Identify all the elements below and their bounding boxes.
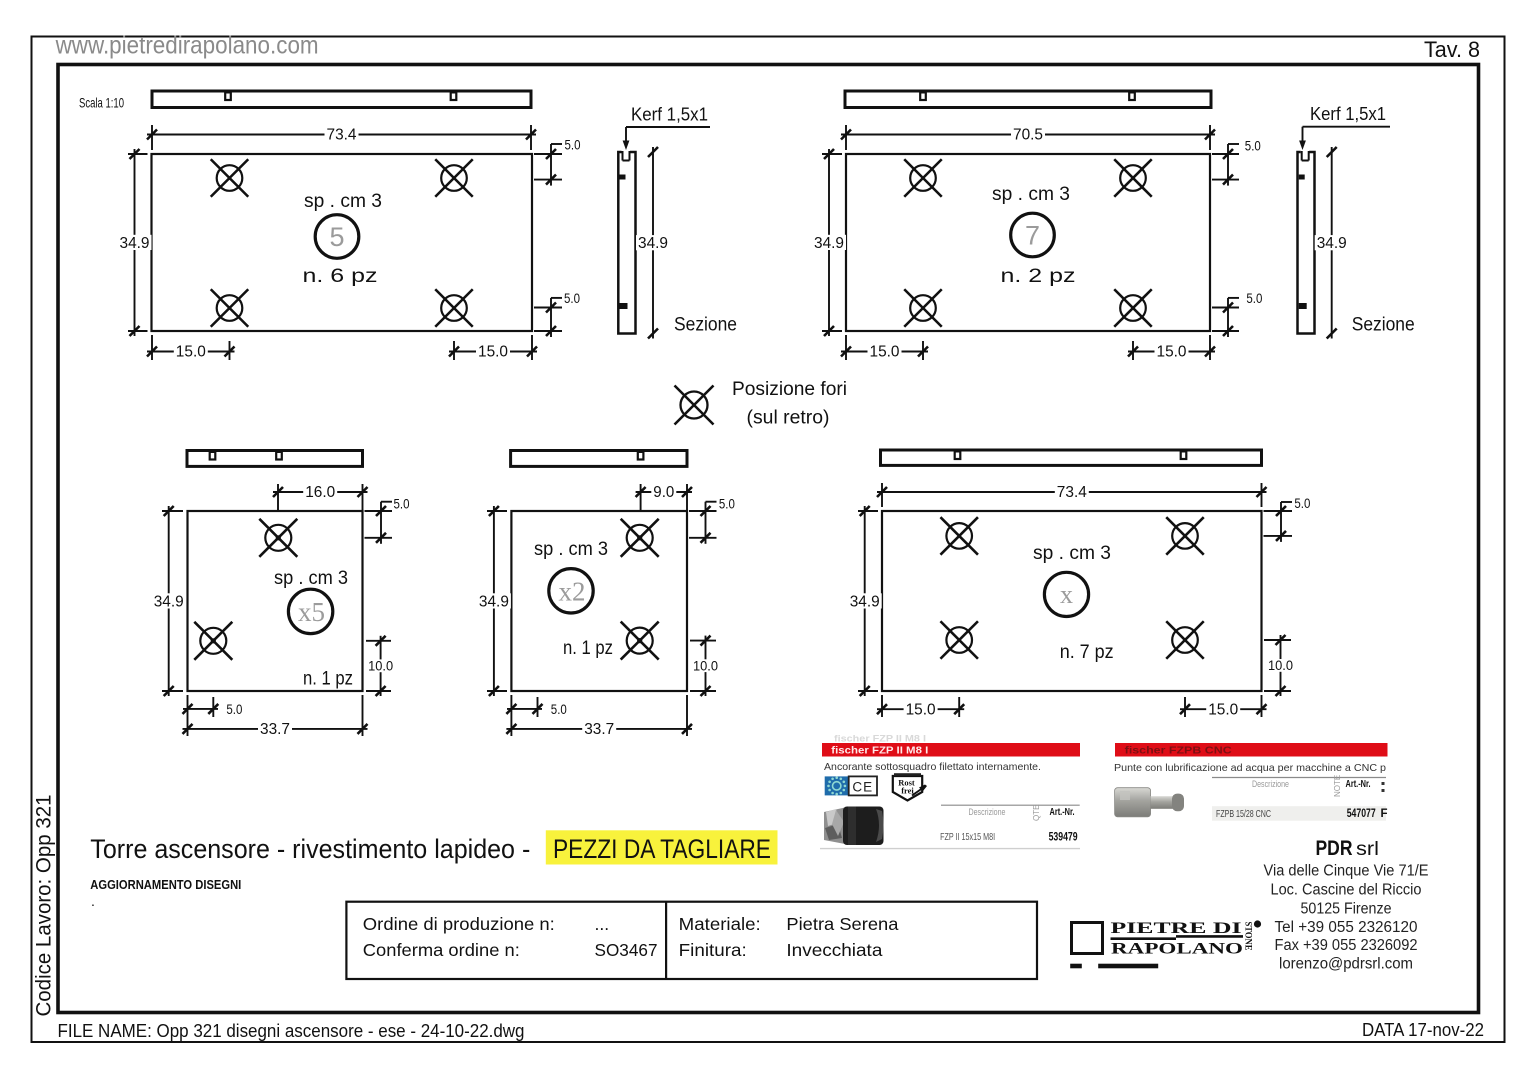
- svg-text:NOTE: NOTE: [1333, 775, 1342, 797]
- svg-text:(sul retro): (sul retro): [747, 408, 830, 429]
- svg-text:sp . cm 3: sp . cm 3: [534, 539, 608, 560]
- svg-text:Art.-Nr.: Art.-Nr.: [1346, 779, 1371, 790]
- svg-text:FILE NAME: Opp 321 disegni as: FILE NAME: Opp 321 disegni ascensore - e…: [58, 1021, 525, 1041]
- svg-text:Tel +39 055 2326120: Tel +39 055 2326120: [1275, 919, 1418, 936]
- svg-text:Kerf 1,5x1: Kerf 1,5x1: [1310, 104, 1386, 124]
- svg-text:n. 1 pz: n. 1 pz: [303, 669, 353, 690]
- svg-text:sp . cm 3: sp . cm 3: [304, 191, 382, 212]
- svg-text:x: x: [1060, 580, 1073, 609]
- svg-text:FZPB 15/28 CNC: FZPB 15/28 CNC: [1216, 808, 1271, 820]
- svg-text:Ancorante sottosquadro filetta: Ancorante sottosquadro filettato interna…: [824, 761, 1041, 773]
- svg-text:5.0: 5.0: [719, 496, 735, 511]
- svg-text:70.5: 70.5: [1013, 127, 1043, 144]
- svg-text:SO3467: SO3467: [595, 940, 658, 960]
- svg-text:n. 7 pz: n. 7 pz: [1060, 642, 1114, 663]
- svg-text:15.0: 15.0: [906, 701, 936, 718]
- svg-text:fischer FZPB CNC: fischer FZPB CNC: [1125, 745, 1232, 757]
- svg-text:Codice Lavoro: Opp 321: Codice Lavoro: Opp 321: [33, 795, 56, 1017]
- svg-text:5.0: 5.0: [551, 702, 567, 717]
- svg-text:Conferma ordine n:: Conferma ordine n:: [363, 940, 520, 960]
- svg-text:Descrizione: Descrizione: [1252, 779, 1289, 790]
- svg-text:5.0: 5.0: [1246, 291, 1262, 306]
- svg-text:Via delle Cinque Vie 71/E: Via delle Cinque Vie 71/E: [1264, 863, 1429, 880]
- svg-text:73.4: 73.4: [327, 127, 357, 144]
- svg-text:x5: x5: [298, 597, 325, 627]
- svg-text:PDR: PDR: [1316, 837, 1353, 860]
- svg-text:5.0: 5.0: [226, 702, 242, 717]
- svg-text:34.9: 34.9: [479, 593, 509, 610]
- svg-text:STONE: STONE: [1244, 922, 1254, 951]
- svg-text:34.9: 34.9: [1317, 235, 1347, 252]
- svg-text:15.0: 15.0: [478, 344, 508, 361]
- svg-text:RAPOLANO: RAPOLANO: [1111, 941, 1243, 958]
- svg-text:34.9: 34.9: [154, 593, 184, 610]
- svg-text:5.0: 5.0: [1245, 138, 1261, 153]
- svg-text:fischer FZP II M8 I: fischer FZP II M8 I: [831, 745, 928, 757]
- svg-text:n. 1 pz: n. 1 pz: [563, 638, 613, 659]
- svg-text:Kerf 1,5x1: Kerf 1,5x1: [631, 105, 708, 125]
- svg-text:50125 Firenze: 50125 Firenze: [1301, 901, 1392, 918]
- svg-text:.: .: [91, 893, 95, 909]
- svg-text:sp . cm 3: sp . cm 3: [992, 184, 1070, 205]
- svg-text:34.9: 34.9: [814, 235, 844, 252]
- svg-text:10.0: 10.0: [693, 658, 718, 673]
- svg-text:PEZZI DA TAGLIARE: PEZZI DA TAGLIARE: [553, 834, 771, 864]
- svg-text:5.0: 5.0: [565, 137, 581, 152]
- svg-text:34.9: 34.9: [850, 593, 880, 610]
- svg-text:sp . cm 3: sp . cm 3: [1033, 543, 1111, 564]
- svg-text:34.9: 34.9: [120, 235, 150, 252]
- svg-text:Fax +39 055 2326092: Fax +39 055 2326092: [1275, 937, 1418, 954]
- svg-text:5: 5: [329, 222, 344, 252]
- svg-text:Punte con lubrificazione ad ac: Punte con lubrificazione ad acqua per ma…: [1114, 762, 1386, 774]
- svg-text:lorenzo@pdrsrl.com: lorenzo@pdrsrl.com: [1279, 956, 1413, 973]
- svg-text:5.0: 5.0: [394, 496, 410, 511]
- svg-text:sp . cm 3: sp . cm 3: [274, 568, 348, 589]
- svg-text:5.0: 5.0: [564, 291, 580, 306]
- svg-text:Ordine di produzione n:: Ordine di produzione n:: [363, 914, 555, 934]
- svg-text:10.0: 10.0: [368, 658, 393, 673]
- svg-text:FZP II 15x15 M8I: FZP II 15x15 M8I: [940, 831, 995, 843]
- svg-text:...: ...: [595, 914, 610, 934]
- svg-text:34.9: 34.9: [638, 235, 668, 252]
- svg-text:15.0: 15.0: [1208, 701, 1238, 718]
- svg-text:5.0: 5.0: [1294, 496, 1310, 511]
- svg-text:PIETRE DI: PIETRE DI: [1111, 920, 1242, 937]
- svg-text:Art.-Nr.: Art.-Nr.: [1050, 807, 1075, 818]
- svg-text:73.4: 73.4: [1057, 484, 1087, 501]
- svg-text:Tav. 8: Tav. 8: [1424, 37, 1480, 62]
- svg-text:n. 2 pz: n. 2 pz: [1001, 266, 1076, 287]
- svg-text:QTE: QTE: [1032, 805, 1041, 821]
- svg-text:7: 7: [1025, 221, 1040, 251]
- svg-text:DATA 17-nov-22: DATA 17-nov-22: [1362, 1020, 1484, 1040]
- svg-text:33.7: 33.7: [260, 721, 290, 738]
- svg-text:Descrizione: Descrizione: [969, 807, 1006, 818]
- svg-text:CE: CE: [852, 780, 873, 795]
- svg-text:15.0: 15.0: [176, 344, 206, 361]
- svg-text:Torre ascensore - rivestimento: Torre ascensore - rivestimento lapideo -: [90, 834, 530, 864]
- svg-text:Loc. Cascine del Riccio: Loc. Cascine del Riccio: [1271, 882, 1422, 899]
- svg-text:Scala 1:10: Scala 1:10: [79, 95, 124, 111]
- svg-text:10.0: 10.0: [1268, 658, 1293, 673]
- svg-text:fischer FZP II M8 I: fischer FZP II M8 I: [834, 734, 926, 745]
- svg-text:547077: 547077: [1347, 808, 1376, 820]
- svg-text:Invecchiata: Invecchiata: [786, 940, 882, 960]
- svg-text:33.7: 33.7: [584, 721, 614, 738]
- svg-text:15.0: 15.0: [1157, 344, 1187, 361]
- svg-text:x2: x2: [559, 577, 586, 607]
- svg-text:srl: srl: [1356, 839, 1379, 860]
- svg-text:Posizione fori: Posizione fori: [732, 379, 847, 400]
- svg-text:Finitura:: Finitura:: [679, 940, 747, 960]
- svg-text:Materiale:: Materiale:: [679, 914, 761, 934]
- svg-text:frei: frei: [901, 786, 914, 796]
- svg-text:F: F: [1381, 808, 1388, 820]
- svg-text:AGGIORNAMENTO DISEGNI: AGGIORNAMENTO DISEGNI: [90, 877, 241, 892]
- svg-text:n. 6 pz: n. 6 pz: [303, 266, 378, 287]
- svg-text:539479: 539479: [1049, 832, 1078, 844]
- svg-text:Pietra Serena: Pietra Serena: [786, 914, 898, 934]
- svg-text:Sezione: Sezione: [1352, 315, 1415, 336]
- svg-text:15.0: 15.0: [870, 344, 900, 361]
- svg-text:Sezione: Sezione: [674, 315, 737, 336]
- svg-text:9.0: 9.0: [653, 484, 674, 501]
- svg-text:www.pietredirapolano.com: www.pietredirapolano.com: [55, 32, 319, 60]
- svg-text:16.0: 16.0: [305, 484, 335, 501]
